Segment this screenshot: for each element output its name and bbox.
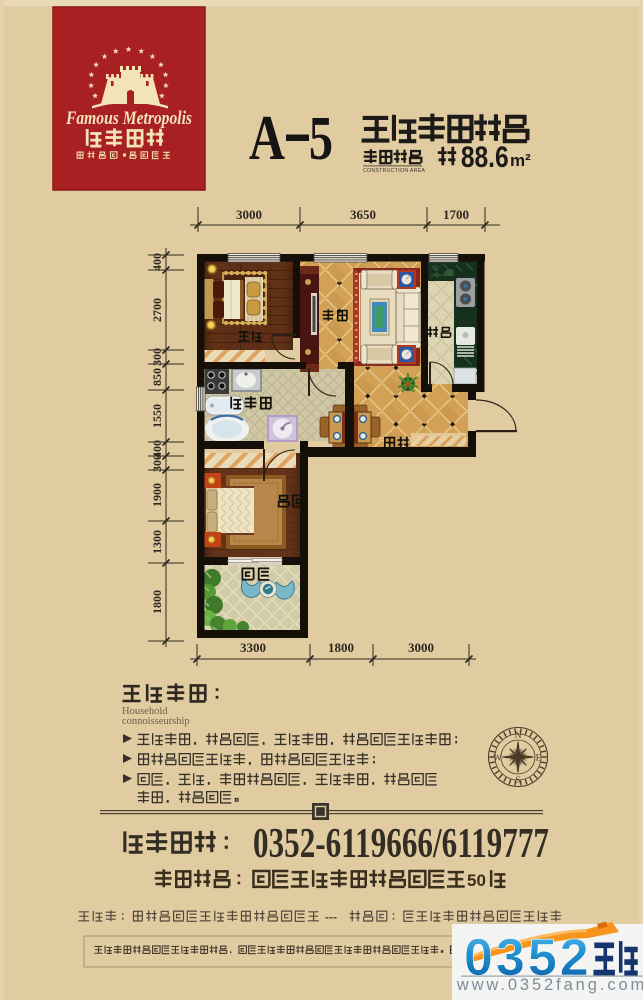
svg-text:1900: 1900 xyxy=(150,483,164,507)
svg-text:300: 300 xyxy=(150,454,164,472)
svg-text:88.6: 88.6 xyxy=(461,140,509,174)
svg-text:1550: 1550 xyxy=(150,404,164,428)
svg-text:connoisseurship: connoisseurship xyxy=(122,716,190,727)
svg-text:W: W xyxy=(493,754,502,764)
svg-text:N: N xyxy=(515,731,522,741)
svg-text:Famous Metropolis: Famous Metropolis xyxy=(65,108,192,129)
svg-text:A: A xyxy=(249,103,286,173)
svg-text:3000: 3000 xyxy=(408,640,434,655)
svg-text:300: 300 xyxy=(150,348,164,366)
svg-text:400: 400 xyxy=(150,253,164,271)
svg-text:1300: 1300 xyxy=(150,530,164,554)
svg-text:CONSTRUCTION AREA: CONSTRUCTION AREA xyxy=(363,168,425,174)
svg-text:S: S xyxy=(515,776,520,786)
svg-text:2700: 2700 xyxy=(150,298,164,322)
svg-text:3650: 3650 xyxy=(350,207,376,222)
svg-text:E: E xyxy=(536,754,542,764)
svg-text:1800: 1800 xyxy=(150,590,164,614)
svg-text:1800: 1800 xyxy=(328,640,354,655)
svg-text:850: 850 xyxy=(150,368,164,386)
svg-text:50: 50 xyxy=(467,871,486,890)
svg-text:5: 5 xyxy=(309,104,333,173)
svg-text:m²: m² xyxy=(510,151,531,170)
svg-text:---: --- xyxy=(325,910,337,924)
svg-text:www.0352fang.com: www.0352fang.com xyxy=(456,976,643,994)
svg-text:3300: 3300 xyxy=(240,640,266,655)
svg-text:0352-6119666/6119777: 0352-6119666/6119777 xyxy=(253,821,549,867)
svg-text:3000: 3000 xyxy=(236,207,262,222)
svg-text:1700: 1700 xyxy=(443,207,469,222)
